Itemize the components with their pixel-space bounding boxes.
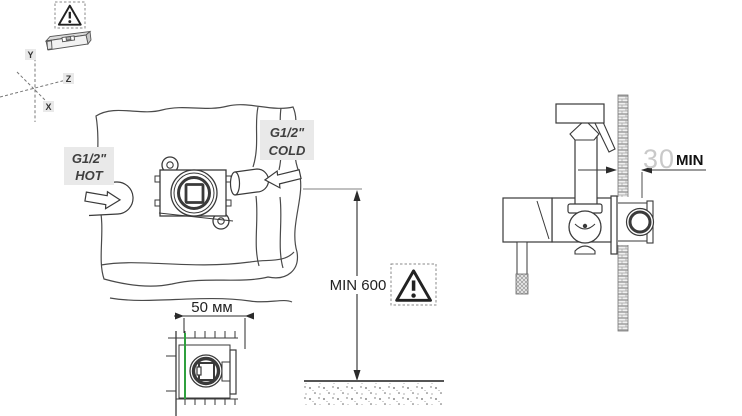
valve-center-square: [186, 185, 203, 203]
wall-bottom-hatch: [176, 399, 238, 405]
hot-label-text: HOT: [75, 168, 104, 183]
valve-section-detail: [166, 331, 238, 416]
holder-cap: [575, 246, 595, 254]
shower-hose-braid: [516, 274, 528, 294]
installation-diagram: Y Z X: [0, 0, 742, 416]
diagram-svg: Y Z X: [0, 0, 742, 416]
wall-mount-plate: [611, 196, 617, 254]
valve-section-flange: [230, 350, 236, 394]
wall-thickness-unit: MIN: [676, 152, 704, 169]
cold-label-text: COLD: [269, 143, 306, 158]
spray-head: [556, 104, 604, 123]
floor-hatch: [304, 383, 444, 405]
floor-warning-icon: [391, 264, 436, 305]
shower-column: [575, 136, 597, 206]
hot-thread-text: G1/2": [72, 151, 107, 166]
axis-x-label: X: [45, 102, 51, 112]
side-view: 30 MIN: [503, 95, 706, 331]
cold-thread-text: G1/2": [270, 125, 305, 140]
height-dimension-label: MIN 600: [330, 277, 387, 294]
hot-supply-label: G1/2" HOT: [64, 147, 114, 185]
axis-y-label: Y: [27, 50, 33, 60]
wall-thickness-value: 30: [643, 144, 675, 174]
height-dimension: MIN 600: [303, 189, 444, 405]
wall-hatch-ticks: [166, 338, 176, 391]
shower-hose: [517, 242, 527, 275]
axis-indicator: Y Z X: [0, 49, 74, 122]
valve-cartridge: [171, 170, 217, 216]
cold-pipe-stub: [231, 169, 269, 195]
cold-supply-label: G1/2" COLD: [260, 120, 314, 160]
level-warning-icon: [55, 2, 85, 28]
mixer-body: [503, 198, 552, 242]
spirit-level-icon: [46, 32, 91, 51]
axis-z-label: Z: [66, 74, 72, 84]
depth-dimension-label: 50 мм: [191, 299, 232, 316]
